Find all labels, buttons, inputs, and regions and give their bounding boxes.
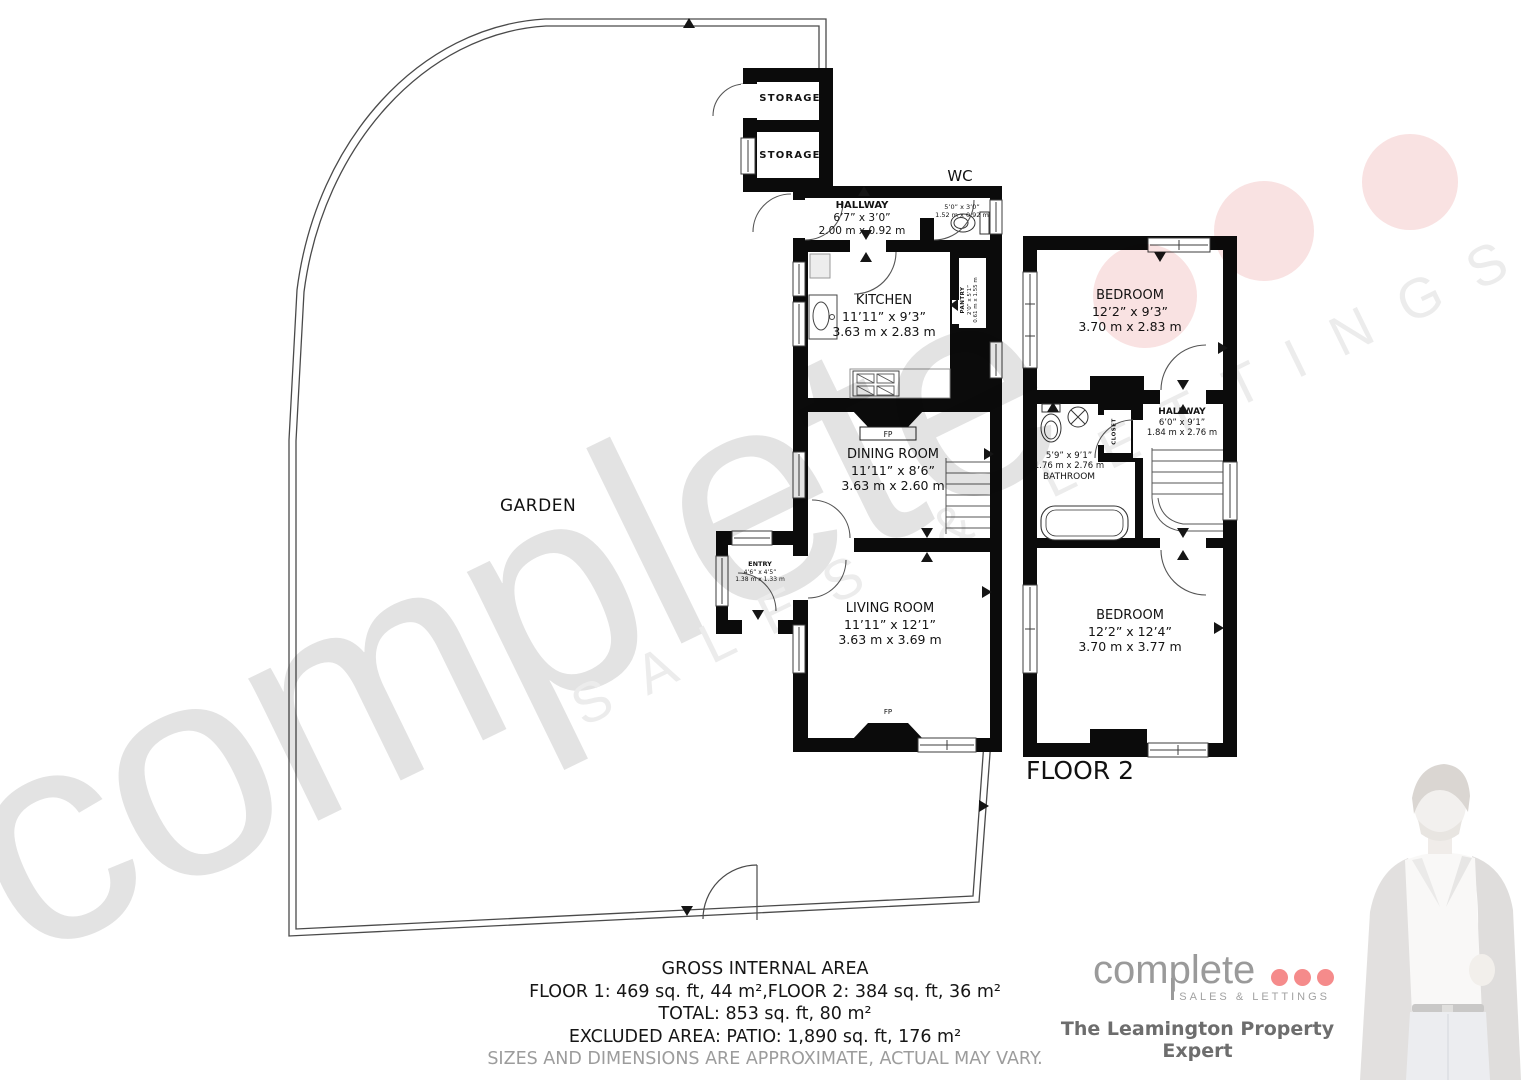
bathtub-icon xyxy=(1041,506,1128,540)
window-kitchen-right xyxy=(990,342,1002,378)
kitchen-door-gap xyxy=(850,240,886,252)
window-kitchen-left-2 xyxy=(793,302,805,346)
storage-bottom-label: STORAGE xyxy=(747,150,833,162)
window-bedroom-top-top xyxy=(1148,238,1210,252)
window-living-left xyxy=(793,625,805,673)
summary-excluded: EXCLUDED AREA: PATIO: 1,890 sq. ft, 176 … xyxy=(415,1026,1115,1049)
marker-garden-bottom xyxy=(681,906,693,916)
logo-dot-3 xyxy=(1317,969,1334,986)
window-bedroom-bottom-bottom xyxy=(1148,743,1208,757)
window-kitchen-left-1 xyxy=(793,262,805,296)
logo-tagline: The Leamington Property Expert xyxy=(1050,1018,1345,1062)
floor2-title: FLOOR 2 xyxy=(1026,756,1196,785)
fireplace-living-label: FP xyxy=(860,708,916,716)
logo-dot-1 xyxy=(1271,969,1288,986)
window-entry-top xyxy=(732,531,772,545)
stove-icon xyxy=(850,369,950,398)
entry-label: ENTRY 4’6” x 4’5” 1.38 m x 1.33 m xyxy=(724,561,796,584)
bedroom-top-door-gap xyxy=(1160,388,1206,406)
window-dining-left xyxy=(793,452,805,498)
summary-title: GROSS INTERNAL AREA xyxy=(415,958,1115,981)
wc-dims-label: 5’0” x 3’0” 1.52 m x 0.92 m xyxy=(928,204,996,220)
garden-label: GARDEN xyxy=(500,496,610,516)
closet-label: CLOSET xyxy=(1112,407,1123,457)
pantry-label: PANTRY 2’0” x 5’1” 0.61 m x 1.55 m xyxy=(960,263,982,337)
dining-living-door-gap-left xyxy=(808,538,854,552)
fireplace-dining-label: FP xyxy=(858,430,918,439)
marker-garden-right xyxy=(979,800,989,812)
living-room-label: LIVING ROOM 11’11” x 12’1” 3.63 m x 3.69… xyxy=(825,601,955,647)
logo-wordmark: complete xyxy=(1093,948,1255,993)
hallway1-label: HALLWAY 6’7” x 3’0” 2.00 m x 0.92 m xyxy=(799,200,925,238)
chimney-bedroom-top xyxy=(1090,376,1144,392)
summary-total: TOTAL: 853 sq. ft, 80 m² xyxy=(415,1003,1115,1026)
bathroom-sink-icon xyxy=(1068,407,1088,427)
storage-top-label: STORAGE xyxy=(747,93,833,105)
window-living-bottom xyxy=(918,738,976,752)
dining-room-label: DINING ROOM 11’11” x 8’6” 3.63 m x 2.60 … xyxy=(828,447,958,493)
summary-disclaimer: SIZES AND DIMENSIONS ARE APPROXIMATE, AC… xyxy=(415,1048,1115,1071)
entry-bottom-gap xyxy=(742,620,778,634)
window-bedroom-bottom-left xyxy=(1023,585,1037,673)
bedroom-bottom-door-gap xyxy=(1160,536,1206,550)
logo-dot-2 xyxy=(1294,969,1311,986)
kitchen-label: KITCHEN 11’11” x 9’3” 3.63 m x 2.83 m xyxy=(819,293,949,339)
bathroom-label: 5’9” x 9’1” 1.76 m x 2.76 m BATHROOM xyxy=(1026,451,1112,483)
window-hallway2-right xyxy=(1223,462,1237,520)
garden-gate-door xyxy=(703,865,757,920)
logo-subtext: SALES & LETTINGS xyxy=(1140,991,1330,1003)
summary-floors: FLOOR 1: 469 sq. ft, 44 m²,FLOOR 2: 384 … xyxy=(415,981,1115,1004)
chimney-bedroom-bottom xyxy=(1090,729,1147,745)
window-bedroom-top-left xyxy=(1023,272,1037,368)
closet-door-gap xyxy=(1096,415,1104,445)
wc-title: WC xyxy=(938,167,982,185)
floorplan-page: GARDEN STORAGE STORAGE WC HALLWAY 6’7” x… xyxy=(0,0,1527,1080)
bedroom-top-label: BEDROOM 12’2” x 9’3” 3.70 m x 2.83 m xyxy=(1065,288,1195,334)
kitchen-appliance-icon xyxy=(810,254,830,278)
area-summary: GROSS INTERNAL AREA FLOOR 1: 469 sq. ft,… xyxy=(415,958,1115,1071)
hallway2-label: HALLWAY 6’0” x 9’1” 1.84 m x 2.76 m xyxy=(1137,407,1227,439)
bedroom-bottom-label: BEDROOM 12’2” x 12’4” 3.70 m x 3.77 m xyxy=(1065,608,1195,654)
